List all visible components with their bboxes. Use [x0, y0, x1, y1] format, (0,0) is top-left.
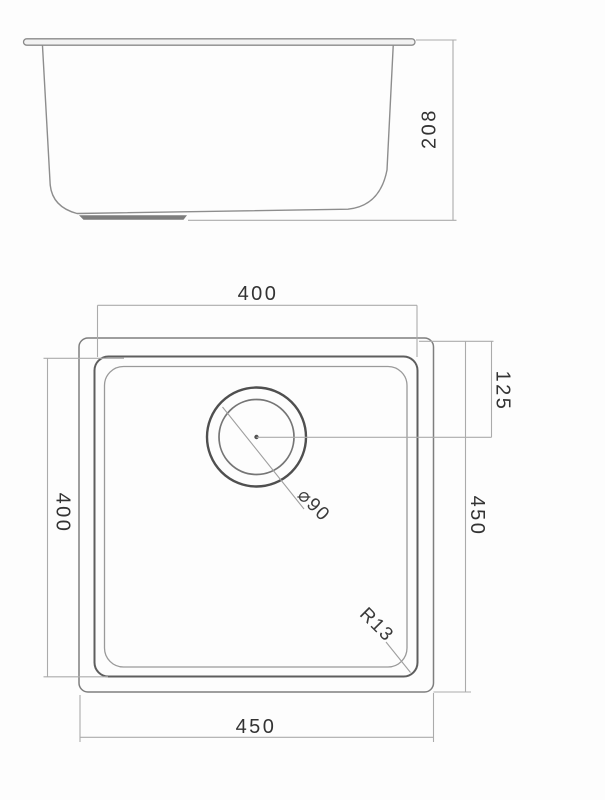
bottom-width-label: 450: [236, 716, 277, 738]
sink-technical-drawing: 208 ⌀90 400: [0, 0, 605, 800]
dimension-bottom-width: 450: [80, 693, 434, 742]
side-view-foot-strip: [79, 215, 187, 220]
drain: ⌀90: [207, 388, 334, 527]
plan-view: ⌀90 400 400 450: [44, 283, 514, 742]
top-width-label: 400: [238, 283, 279, 305]
side-view-body-outline: [43, 46, 394, 214]
drain-offset-label: 125: [492, 371, 514, 412]
right-height-label: 450: [466, 496, 488, 537]
corner-radius-label: R13: [355, 604, 398, 647]
dimension-right-height: 450: [419, 341, 494, 692]
drain-diameter-label: ⌀90: [293, 485, 334, 526]
corner-radius-callout: R13: [355, 604, 410, 673]
drawing-canvas: 208 ⌀90 400: [0, 0, 605, 800]
left-height-label: 400: [52, 493, 74, 534]
dimension-left-height: 400: [44, 358, 125, 677]
dimension-top-width: 400: [98, 283, 418, 357]
dimension-depth: 208: [188, 40, 457, 220]
depth-label: 208: [419, 108, 441, 149]
side-view-rim-flange: [24, 39, 416, 45]
side-view: 208: [24, 39, 457, 221]
